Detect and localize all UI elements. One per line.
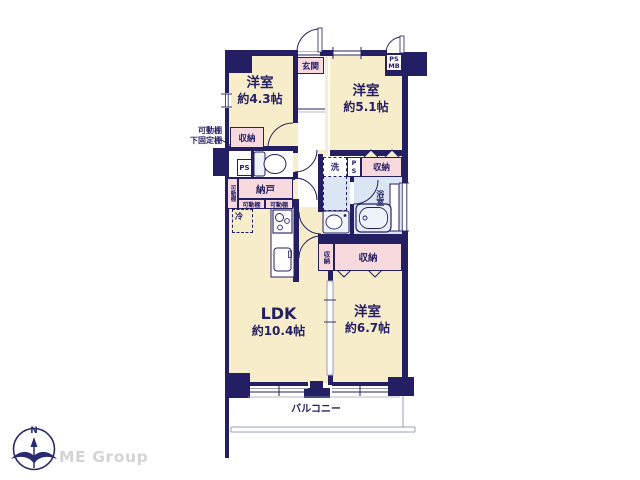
- kitchen-stove-icon: [273, 210, 292, 233]
- entrance-door-panel: [318, 28, 322, 52]
- room-label-entrance: 玄関: [297, 57, 324, 74]
- shelf-annotation: 可動棚 下固定棚: [166, 126, 222, 147]
- storeroom-box: 納戸: [238, 178, 293, 199]
- room-label-western-4-3: 洋室 約4.3帖: [227, 76, 293, 106]
- room-label-ldk: LDK 約10.4帖: [229, 305, 328, 338]
- ps-box-bath: PS: [347, 157, 361, 177]
- toilet-icon: [254, 152, 286, 176]
- closet-box-western3-vertical: 収納: [318, 243, 334, 271]
- movable-shelf-box-vertical: 可動棚: [227, 178, 238, 209]
- washbasin-icon: [323, 211, 349, 233]
- kitchen-sink-icon: [274, 248, 292, 271]
- entrance-door-arc: [297, 29, 320, 52]
- closet-box-western2: 収納: [361, 157, 402, 177]
- company-logo-text: ME Group: [59, 448, 148, 466]
- movable-shelf-box-1: 可動棚: [238, 199, 265, 209]
- ps-mb-door-panel: [400, 36, 404, 53]
- room-label-bathroom: 浴室: [372, 182, 388, 214]
- room-label-western-5-1: 洋室 約5.1帖: [330, 84, 402, 114]
- movable-shelf-box-2: 可動棚: [265, 199, 293, 209]
- fridge-space-box: 冷: [232, 209, 253, 233]
- mb-label: MB: [388, 63, 399, 70]
- closet-box-western3: 収納: [334, 243, 402, 271]
- room-label-western-6-7: 洋室 約6.7帖: [333, 305, 402, 335]
- floorplan-image: 玄関 PS MB 洋室 約4.3帖 洋室 約5.1帖 可動棚 下固定棚 収納 P…: [0, 0, 640, 480]
- washer-space-box: 洗: [323, 157, 347, 177]
- washer-pan-outline: [323, 176, 347, 211]
- ps-mb-box: PS MB: [385, 53, 403, 72]
- kitchen-counter-icon: [271, 207, 294, 277]
- ps-box-toilet: PS: [237, 159, 252, 176]
- room-label-balcony: バルコニー: [248, 404, 384, 416]
- compass-north-label: N: [28, 426, 40, 436]
- closet-box-western1: 収納: [230, 127, 264, 148]
